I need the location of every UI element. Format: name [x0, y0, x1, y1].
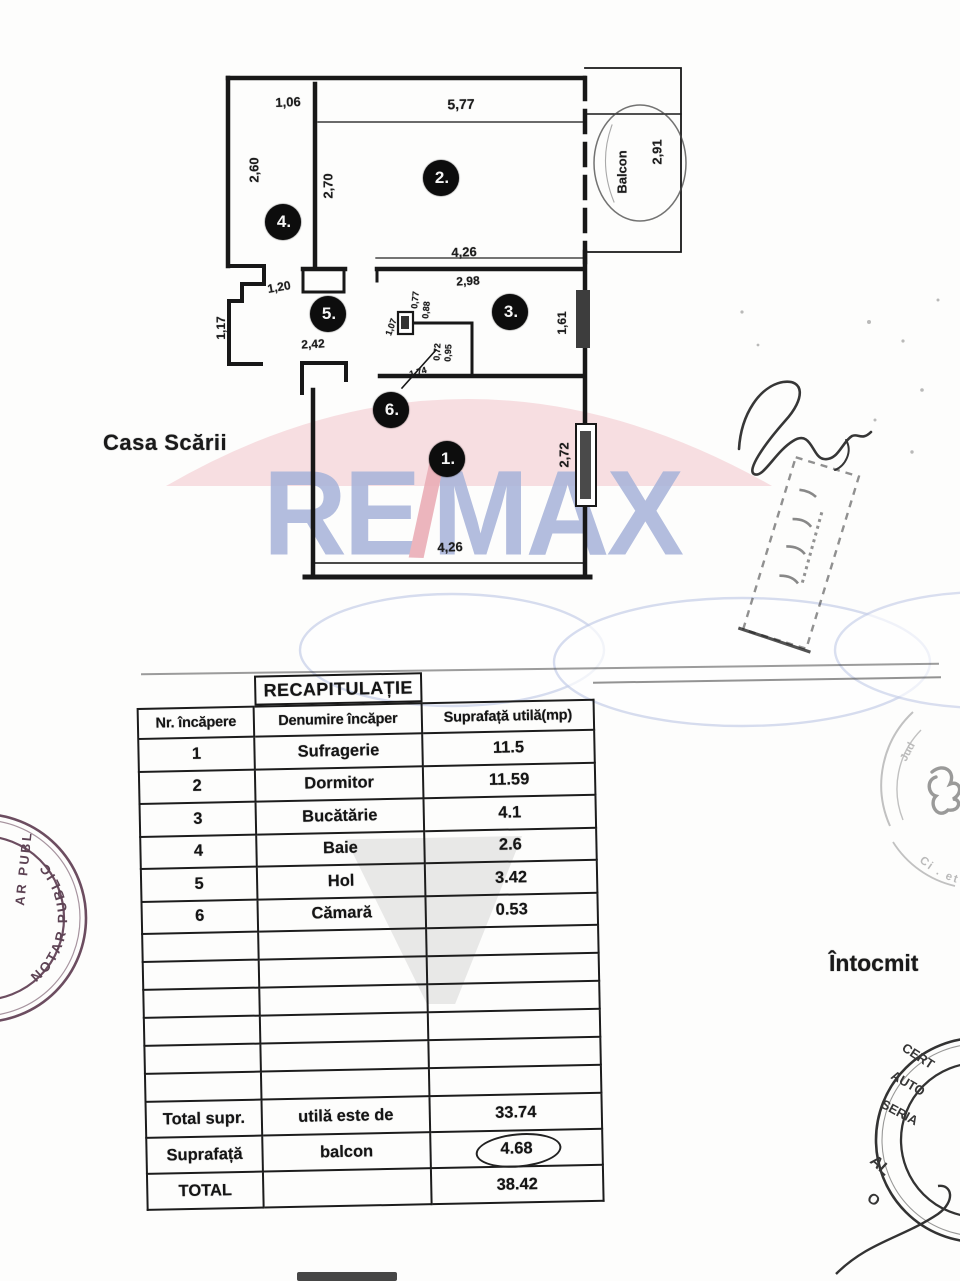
cell-room-area: 11.5 [423, 731, 596, 767]
dimension-label: 0,95 [443, 344, 454, 362]
dimension-label: 5,77 [447, 96, 475, 112]
total-label: Total supr. [145, 1101, 264, 1139]
cell-room-area: 0.53 [426, 893, 599, 929]
dimension-label: 0,77 [409, 291, 421, 309]
recapitulation-table: RECAPITULAȚIE Nr. încăpereDenumire încăp… [136, 669, 605, 1211]
empty-cell [260, 957, 429, 988]
empty-cell [261, 1041, 430, 1072]
room-number-badge: 2. [423, 160, 459, 196]
room-number-badge: 6. [373, 392, 409, 428]
empty-cell [261, 1013, 430, 1044]
header-suprafata: Suprafață utilă(mp) [423, 699, 596, 734]
dimension-label: 0,72 [432, 343, 443, 361]
room-number-badge: 1. [429, 441, 465, 477]
room-number-badge: 5. [310, 296, 346, 332]
dimension-label: 1,06 [275, 94, 301, 110]
dimension-label: 1,74 [408, 365, 428, 379]
empty-cell [429, 1010, 602, 1041]
cell-room-number: 4 [139, 835, 258, 870]
dimension-label: 0,88 [420, 301, 432, 319]
cell-room-number: 6 [141, 900, 260, 935]
cell-room-number: 3 [139, 803, 258, 838]
empty-cell [142, 989, 261, 1019]
room-number-badge: 4. [265, 204, 301, 240]
cell-room-area: 11.59 [424, 763, 597, 799]
empty-cell [142, 961, 261, 991]
cell-room-number: 5 [140, 868, 259, 903]
dimension-label: 2,60 [247, 157, 262, 182]
empty-cell [262, 1069, 431, 1100]
empty-cell [428, 954, 601, 985]
cell-room-name: Bucătărie [257, 799, 426, 835]
empty-cell [141, 933, 260, 963]
empty-cell [429, 1038, 602, 1069]
total-label: TOTAL [146, 1173, 265, 1211]
cell-room-name: Hol [258, 864, 427, 900]
cell-room-area: 3.42 [426, 861, 599, 897]
scanned-floorplan-document: { "page": { "casa_scarii": "Casa Scării"… [0, 0, 960, 1281]
dimension-label: 2,98 [456, 273, 480, 288]
dimension-label: 2,72 [557, 442, 572, 467]
dimension-label: 2,42 [301, 336, 325, 351]
empty-cell [143, 1017, 262, 1047]
dimension-label: 4,26 [451, 244, 477, 260]
title-spacer [136, 676, 255, 708]
header-nr: Nr. încăpere [137, 706, 256, 740]
dimension-label: 1,07 [383, 317, 398, 337]
balcony-dimension: 2,91 [650, 139, 665, 164]
table-title: RECAPITULAȚIE [254, 672, 423, 705]
empty-cell [427, 926, 600, 957]
plan-labels-layer: Balcon 2,91 1,065,772,602,704,262,981,20… [0, 0, 960, 660]
cell-room-name: Cămară [258, 897, 427, 933]
cell-room-area: 4.1 [424, 796, 597, 832]
dimension-label: 1,20 [266, 278, 291, 296]
total-sublabel [264, 1169, 433, 1208]
title-spacer [422, 669, 595, 702]
dimension-label: 1,61 [555, 311, 569, 334]
total-sublabel: utilă este de [263, 1097, 432, 1136]
room-number-badge: 3. [492, 294, 528, 330]
stairwell-label: Casa Scării [103, 430, 227, 456]
empty-cell [144, 1073, 263, 1103]
intocmit-label: Întocmit [829, 950, 918, 977]
cell-room-name: Sufragerie [255, 734, 424, 770]
empty-cell [260, 985, 429, 1016]
total-sublabel: balcon [263, 1133, 432, 1172]
empty-cell [143, 1045, 262, 1075]
total-value: 38.42 [432, 1166, 605, 1205]
total-value: 33.74 [430, 1094, 603, 1133]
cell-room-number: 2 [138, 770, 257, 805]
dimension-label: 1,17 [214, 316, 228, 339]
cell-room-area: 2.6 [425, 828, 598, 864]
header-denumire: Denumire încăper [255, 702, 424, 737]
empty-cell [259, 929, 428, 960]
empty-cell [428, 982, 601, 1013]
dimension-label: 2,70 [321, 173, 336, 198]
cell-room-name: Dormitor [256, 767, 425, 803]
total-label: Suprafață [145, 1137, 264, 1175]
cell-room-number: 1 [137, 738, 256, 773]
dimension-label: 4,26 [437, 539, 463, 555]
balcony-label: Balcon [615, 150, 630, 193]
empty-cell [430, 1066, 603, 1097]
cell-room-name: Baie [257, 832, 426, 868]
